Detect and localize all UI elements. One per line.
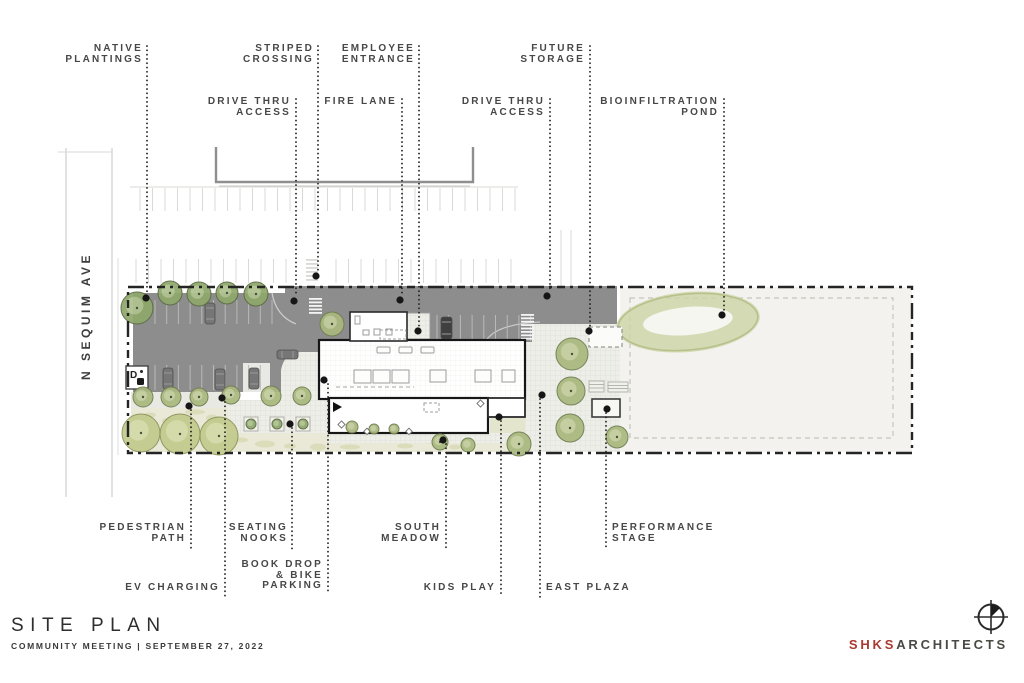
label-employee-entrance: EMPLOYEEENTRANCE [342,44,415,65]
label-future-storage-line: FUTURE [520,44,585,55]
leader-dot-drive-thru-access-west [290,297,297,304]
drive-thru-lane-east [532,286,617,324]
leader-dot-kids-play [495,413,502,420]
leader-dot-seating-nooks [286,420,293,427]
plaza-benches [589,381,628,392]
label-south-meadow-line: MEADOW [381,534,441,545]
parked-car [205,303,215,324]
leader-dot-striped-crossing [312,272,319,279]
label-drive-thru-access-west-line: DRIVE THRU [208,97,291,108]
label-south-meadow-line: SOUTH [381,523,441,534]
label-ev-charging: EV CHARGING [125,583,220,594]
label-employee-entrance-line: EMPLOYEE [342,44,415,55]
parked-car [277,350,298,359]
label-bioinfiltration-pond: BIOINFILTRATIONPOND [600,97,719,118]
label-drive-thru-access-west-line: ACCESS [208,108,291,119]
leader-dot-employee-entrance [414,327,421,334]
adjacent-building-outline [216,147,473,182]
parked-car [163,368,173,389]
leader-dot-book-drop-bike-parking [320,376,327,383]
accessible-parking-sign: D [126,366,148,389]
label-native-plantings-line: NATIVE [65,44,143,55]
label-book-drop-bike-parking: BOOK DROP& BIKEPARKING [242,560,323,592]
label-book-drop-bike-parking-line: PARKING [242,581,323,592]
leader-dot-drive-thru-access-east [543,292,550,299]
label-east-plaza: EAST PLAZA [546,583,631,594]
label-ev-charging-line: EV CHARGING [125,583,220,594]
leader-dot-bioinfiltration-pond [718,311,725,318]
label-fire-lane-line: FIRE LANE [324,97,397,108]
leader-dot-pedestrian-path [185,402,192,409]
parked-car [441,317,452,339]
label-south-meadow: SOUTHMEADOW [381,523,441,544]
label-pedestrian-path-line: PEDESTRIAN [100,523,186,534]
street-name-label: N SEQUIM AVE [79,252,93,380]
building-east-room [488,398,525,417]
label-striped-crossing: STRIPEDCROSSING [243,44,314,65]
label-seating-nooks-line: NOOKS [229,534,288,545]
label-book-drop-bike-parking-line: BOOK DROP [242,560,323,571]
label-performance-stage: PERFORMANCESTAGE [612,523,715,544]
label-pedestrian-path: PEDESTRIANPATH [100,523,186,544]
leader-dot-ev-charging [218,394,225,401]
label-employee-entrance-line: ENTRANCE [342,55,415,66]
label-native-plantings-line: PLANTINGS [65,55,143,66]
label-fire-lane: FIRE LANE [324,97,397,108]
parked-car [249,368,259,389]
leader-dot-east-plaza [538,391,545,398]
shks-logo-icon [974,600,1008,634]
label-east-plaza-line: EAST PLAZA [546,583,631,594]
label-drive-thru-access-east: DRIVE THRUACCESS [462,97,545,118]
label-kids-play: KIDS PLAY [424,583,496,594]
accessible-sign-letter: D [130,370,137,381]
label-seating-nooks-line: SEATING [229,523,288,534]
label-seating-nooks: SEATINGNOOKS [229,523,288,544]
firm-name-short: SHKS [849,637,896,652]
label-pedestrian-path-line: PATH [100,534,186,545]
label-drive-thru-access-east-line: ACCESS [462,108,545,119]
firm-name: SHKSARCHITECTS [849,637,1008,652]
page-subtitle: COMMUNITY MEETING | SEPTEMBER 27, 2022 [11,641,264,652]
label-native-plantings: NATIVEPLANTINGS [65,44,143,65]
leader-dot-fire-lane [396,296,403,303]
parked-car [215,369,225,390]
page-title: SITE PLAN [11,615,167,637]
label-future-storage: FUTURESTORAGE [520,44,585,65]
leader-dot-future-storage [585,327,592,334]
label-drive-thru-access-east-line: DRIVE THRU [462,97,545,108]
future-storage-pad [589,327,622,347]
label-performance-stage-line: STAGE [612,534,715,545]
label-kids-play-line: KIDS PLAY [424,583,496,594]
leader-dot-performance-stage [603,405,610,412]
leader-dot-south-meadow [439,436,446,443]
firm-name-rest: ARCHITECTS [896,637,1008,652]
label-future-storage-line: STORAGE [520,55,585,66]
existing-parking-stalls [136,188,515,283]
label-striped-crossing-line: CROSSING [243,55,314,66]
label-bioinfiltration-pond-line: POND [600,108,719,119]
label-bioinfiltration-pond-line: BIOINFILTRATION [600,97,719,108]
leader-dot-native-plantings [142,294,149,301]
label-striped-crossing-line: STRIPED [243,44,314,55]
label-performance-stage-line: PERFORMANCE [612,523,715,534]
site-plan-page: D [0,0,1024,683]
label-drive-thru-access-west: DRIVE THRUACCESS [208,97,291,118]
